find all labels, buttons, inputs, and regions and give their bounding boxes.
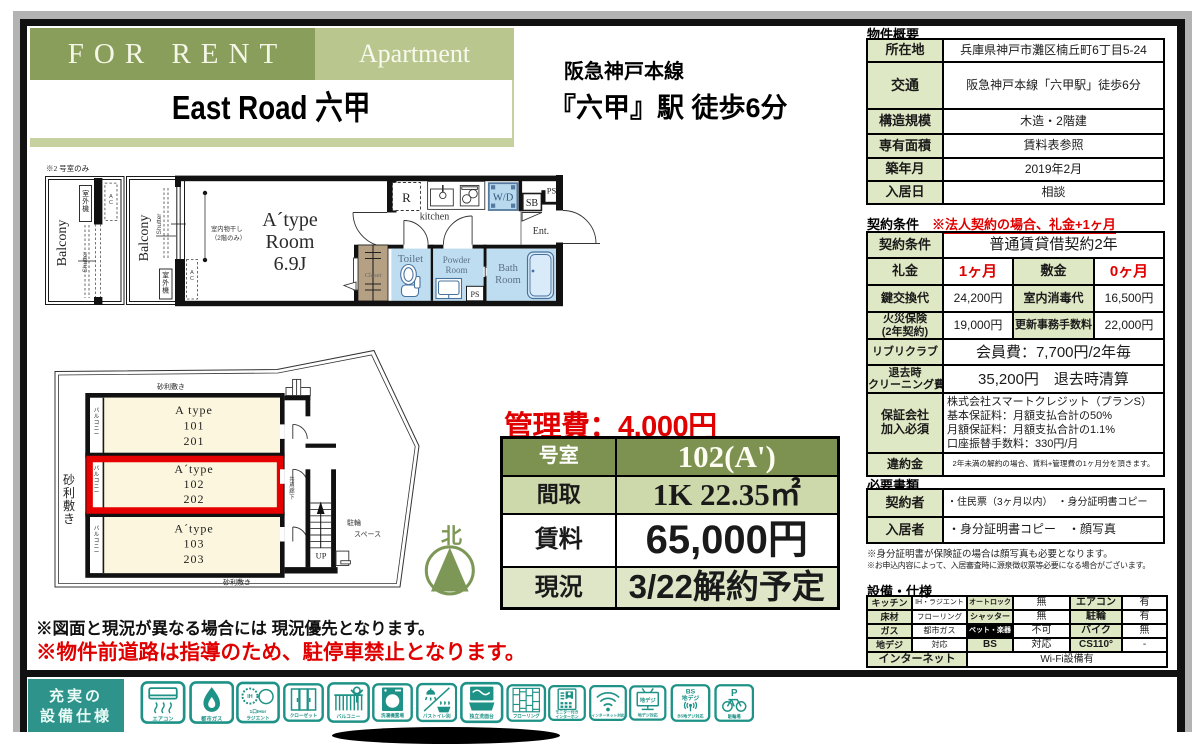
svg-text:Bath: Bath xyxy=(498,263,519,274)
svg-text:A´type: A´type xyxy=(174,462,213,476)
svg-text:A´type: A´type xyxy=(174,522,213,536)
svg-text:スペース: スペース xyxy=(354,531,381,539)
svg-text:砂利敷き: 砂利敷き xyxy=(223,578,251,587)
svg-text:101: 101 xyxy=(184,419,205,433)
svg-text:クローゼット: クローゼット xyxy=(289,712,317,719)
svg-text:Powder: Powder xyxy=(443,255,471,265)
svg-text:PS: PS xyxy=(471,290,480,299)
svg-text:共用廊下: 共用廊下 xyxy=(289,475,295,501)
svg-text:A type: A type xyxy=(175,403,213,417)
svg-text:バストイレ別: バストイレ別 xyxy=(422,712,450,719)
svg-text:202: 202 xyxy=(184,492,205,506)
svg-text:室内物干し: 室内物干し xyxy=(211,224,242,233)
svg-text:室外機: 室外機 xyxy=(82,189,89,213)
svg-text:BS地デジ対応: BS地デジ対応 xyxy=(677,712,704,718)
svg-text:AC: AC xyxy=(109,194,113,206)
svg-text:インターホン: インターホン xyxy=(555,713,578,718)
svg-text:Ent.: Ent. xyxy=(533,226,549,237)
svg-text:Room: Room xyxy=(266,231,315,253)
svg-text:AC: AC xyxy=(190,270,194,282)
svg-text:Balcony: Balcony xyxy=(137,215,152,262)
svg-text:Shutter: Shutter xyxy=(82,251,89,273)
svg-text:102: 102 xyxy=(184,477,205,491)
svg-text:W/D: W/D xyxy=(493,193,514,204)
svg-text:洗濯機置場: 洗濯機置場 xyxy=(381,712,404,719)
svg-text:UP: UP xyxy=(316,551,327,561)
svg-text:（2階のみ）: （2階のみ） xyxy=(211,233,246,242)
svg-text:kitchen: kitchen xyxy=(420,212,449,223)
svg-text:BS: BS xyxy=(685,688,695,695)
svg-text:地デジ対応: 地デジ対応 xyxy=(638,711,658,717)
svg-text:203: 203 xyxy=(184,552,205,566)
svg-text:バルコニー: バルコニー xyxy=(94,525,100,556)
svg-text:R: R xyxy=(402,190,411,205)
svg-text:Closet: Closet xyxy=(365,272,382,279)
svg-text:103: 103 xyxy=(184,537,205,551)
svg-text:6.9J: 6.9J xyxy=(274,253,307,275)
svg-text:IH: IH xyxy=(247,694,252,700)
svg-text:バルコニー: バルコニー xyxy=(94,465,100,496)
svg-text:砂利敷き: 砂利敷き xyxy=(157,382,185,391)
svg-text:201: 201 xyxy=(184,434,205,448)
svg-text:フローリング: フローリング xyxy=(513,712,540,719)
svg-text:Room: Room xyxy=(495,275,521,286)
svg-text:地デジ: 地デジ xyxy=(681,694,699,702)
svg-text:砂利敷き: 砂利敷き xyxy=(63,473,75,526)
svg-text:独立洗面台: 独立洗面台 xyxy=(469,713,494,720)
svg-text:P: P xyxy=(731,688,738,699)
svg-text:北: 北 xyxy=(441,525,462,548)
svg-text:エアコン: エアコン xyxy=(152,715,173,722)
svg-text:SB: SB xyxy=(526,198,539,209)
svg-text:インターネット対応: インターネット対応 xyxy=(591,712,624,717)
svg-text:駐輪: 駐輪 xyxy=(347,518,361,527)
svg-text:Room: Room xyxy=(445,265,467,275)
svg-text:PS: PS xyxy=(547,186,557,196)
svg-text:バルコニー: バルコニー xyxy=(336,713,360,720)
svg-text:Shutter: Shutter xyxy=(156,213,163,235)
svg-text:Balcony: Balcony xyxy=(55,220,70,267)
svg-text:バルコニー: バルコニー xyxy=(94,407,100,438)
svg-text:地デジ: 地デジ xyxy=(640,696,657,704)
svg-text:A´type: A´type xyxy=(262,209,318,231)
svg-text:室外機: 室外機 xyxy=(162,271,169,295)
svg-text:ラジエント: ラジエント xyxy=(246,715,270,721)
svg-text:1口IHor: 1口IHor xyxy=(249,709,266,715)
svg-text:Toilet: Toilet xyxy=(398,253,424,265)
svg-text:※2 号室のみ: ※2 号室のみ xyxy=(46,163,90,173)
svg-text:駐輪場: 駐輪場 xyxy=(727,712,741,719)
svg-text:都市ガス: 都市ガス xyxy=(200,714,222,722)
